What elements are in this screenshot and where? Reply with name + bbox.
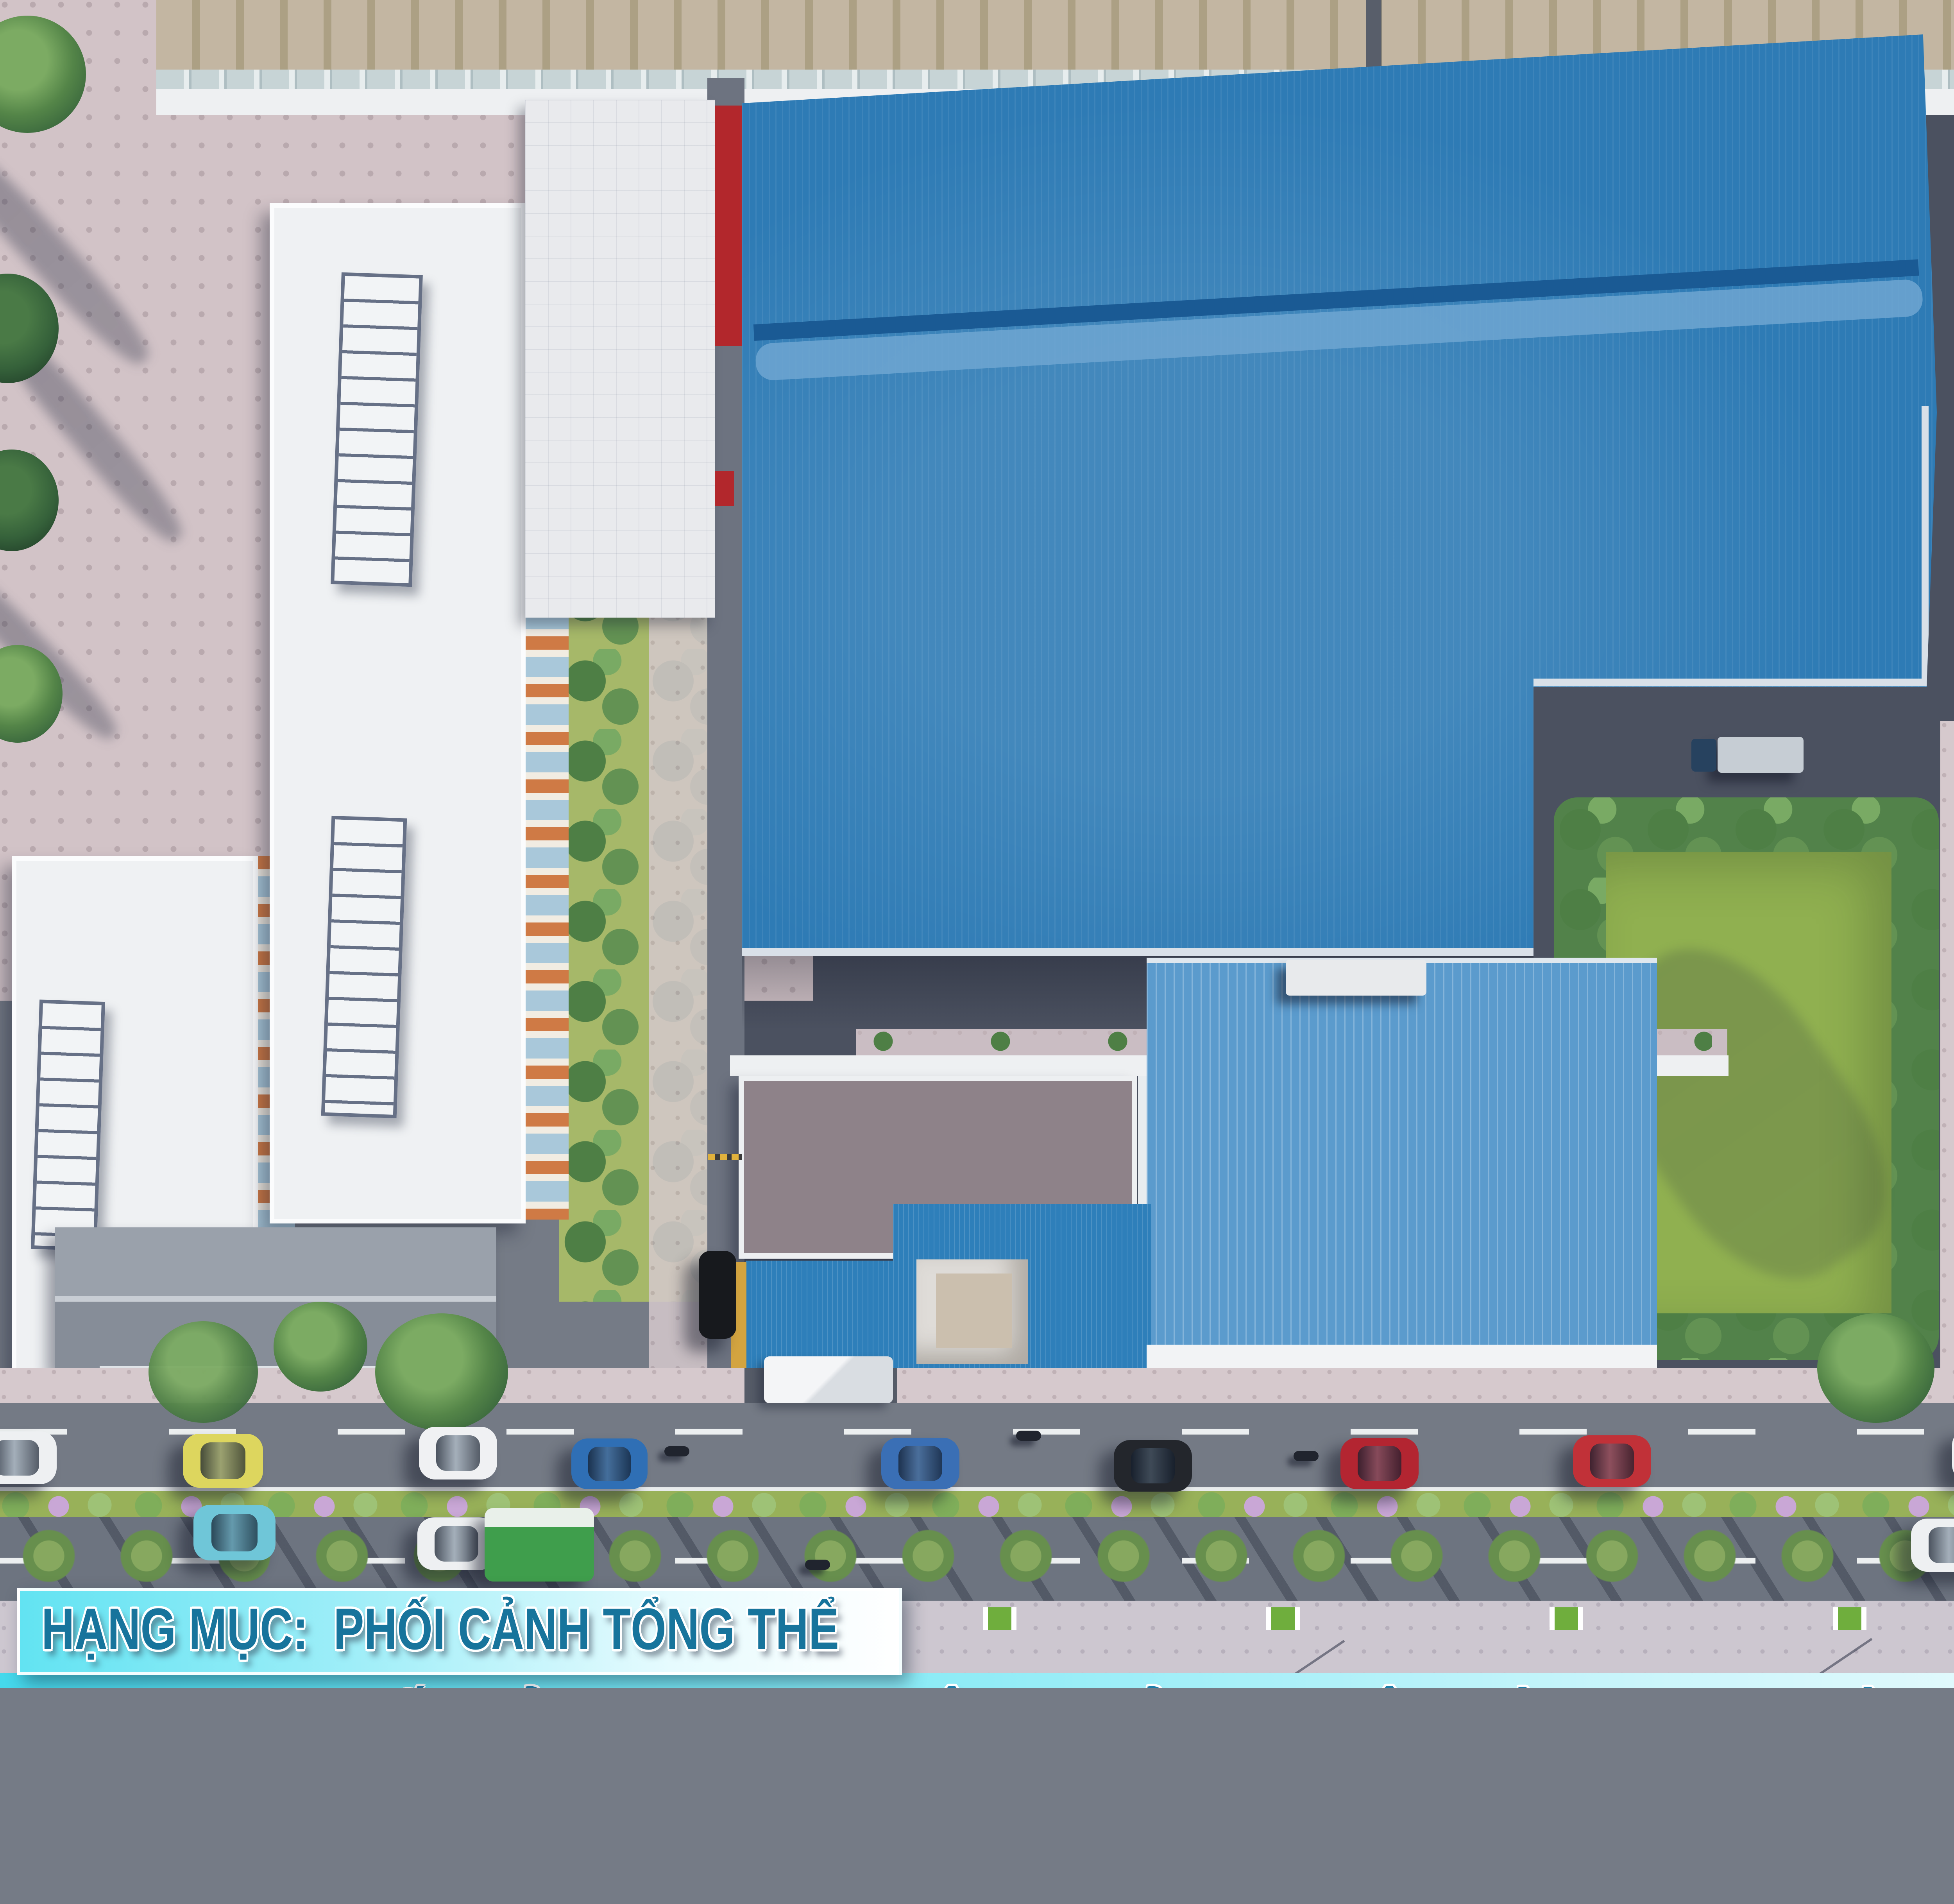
green-bus (485, 1508, 594, 1582)
item-label-value: PHỐI CẢNH TỔNG THỂ (333, 1596, 839, 1662)
car-white-4 (417, 1517, 496, 1570)
apartment-block-a-skylight (31, 999, 105, 1251)
car-glass (0, 1440, 39, 1476)
headquarters-line: Trụ sở: khu Nam Thông 3, quận 7, thành p… (1394, 1843, 1954, 1897)
white-slab-building (525, 100, 715, 618)
street-tree-2 (274, 1302, 367, 1392)
gate-barrier (708, 1154, 742, 1160)
car-black-parked (1114, 1440, 1192, 1492)
car-yellow (183, 1434, 263, 1488)
car-black-west-road (699, 1251, 736, 1339)
truck-cab (1691, 739, 1716, 772)
car-glass (435, 1526, 478, 1562)
motorbike-2 (1016, 1431, 1041, 1441)
street-tree-1 (149, 1321, 258, 1423)
main-title: PHỐI CẢNH TRUNG TÂM KHỞI NGHIỆP VÀ TRƯNG… (0, 1685, 1954, 1775)
white-delivery-truck (1286, 960, 1426, 996)
east-road-west-sidewalk (1940, 721, 1954, 1392)
car-glass (1131, 1448, 1175, 1483)
west-site-sidewalk (649, 489, 707, 1368)
roof-gutter-east (1922, 406, 1929, 685)
red-stair-tower (715, 106, 745, 346)
car-glass (211, 1514, 258, 1552)
consultant-value: C.TY TNHH TV TK XD KIẾN NGỌC VIỆT (1931, 1776, 1954, 1834)
car-glass (436, 1435, 480, 1471)
car-glass (588, 1447, 631, 1481)
exhibition-hall-roof (1147, 958, 1657, 1345)
car-red-1 (1340, 1438, 1419, 1489)
roof-gutter-south (742, 948, 1535, 956)
car-white-1 (0, 1431, 57, 1484)
investor-label: CHỦ ĐẦU TƯ: C.TY KNDT (17, 1779, 521, 1838)
car-blue-1 (571, 1438, 648, 1489)
title-banner: PHỐI CẢNH TRUNG TÂM KHỞI NGHIỆP VÀ TRƯNG… (0, 1673, 1954, 1904)
atrium-interior (936, 1274, 1012, 1348)
item-label-text: HẠNG MỤC: PHỐI CẢNH TỔNG THỂ (41, 1591, 878, 1667)
car-glass (200, 1442, 245, 1479)
lane-north-dashes (0, 1429, 1954, 1435)
car-glass (1358, 1446, 1401, 1481)
motorbike-1 (664, 1446, 689, 1456)
consultant-label: TƯ VẤN THIẾT KẾ: C.TY TNHH TV TK XD KIẾN… (1547, 1775, 1954, 1834)
roof-gutter-notch (1533, 679, 1928, 686)
car-glass (898, 1446, 942, 1481)
boulevard-lane-north (0, 1403, 1954, 1487)
entrance-roof-west-wing (746, 1261, 918, 1371)
red-kiosk (715, 471, 734, 506)
car-blue-parked (881, 1438, 959, 1489)
item-label-box: HẠNG MỤC: PHỐI CẢNH TỔNG THỂ (17, 1588, 902, 1675)
car-red-2 (1573, 1435, 1651, 1487)
car-cyan (193, 1505, 276, 1560)
car-glass (1929, 1527, 1954, 1563)
aerial-render-canvas: HẠNG MỤC: PHỐI CẢNH TỔNG THỂ PHỐI CẢNH T… (0, 0, 1954, 1904)
investor-line: CHỦ ĐẦU TƯ: C.TY KNDT (17, 1779, 664, 1838)
street-tree-4 (1817, 1313, 1934, 1423)
car-white-2 (419, 1427, 497, 1479)
street-tree-3 (375, 1313, 508, 1431)
car-white-5 (1911, 1519, 1954, 1572)
item-label-prefix: HẠNG MỤC: PHỐI CẢNH TỔNG THỂ (41, 1591, 839, 1667)
motorbike-3 (1294, 1451, 1319, 1461)
truck-trailer (1718, 737, 1804, 773)
palm-tree-row (0, 1516, 1954, 1596)
apartment-block-b-skylight-1 (331, 272, 423, 587)
investor-value: C.TY KNDT (308, 1780, 521, 1838)
tensile-canopy (764, 1356, 893, 1403)
motorbike-7 (805, 1560, 830, 1570)
apartment-block-b-skylight-2 (321, 816, 407, 1118)
car-glass (1590, 1444, 1634, 1479)
consultant-line: TƯ VẤN THIẾT KẾ: C.TY TNHH TV TK XD KIẾN… (1228, 1775, 1954, 1834)
